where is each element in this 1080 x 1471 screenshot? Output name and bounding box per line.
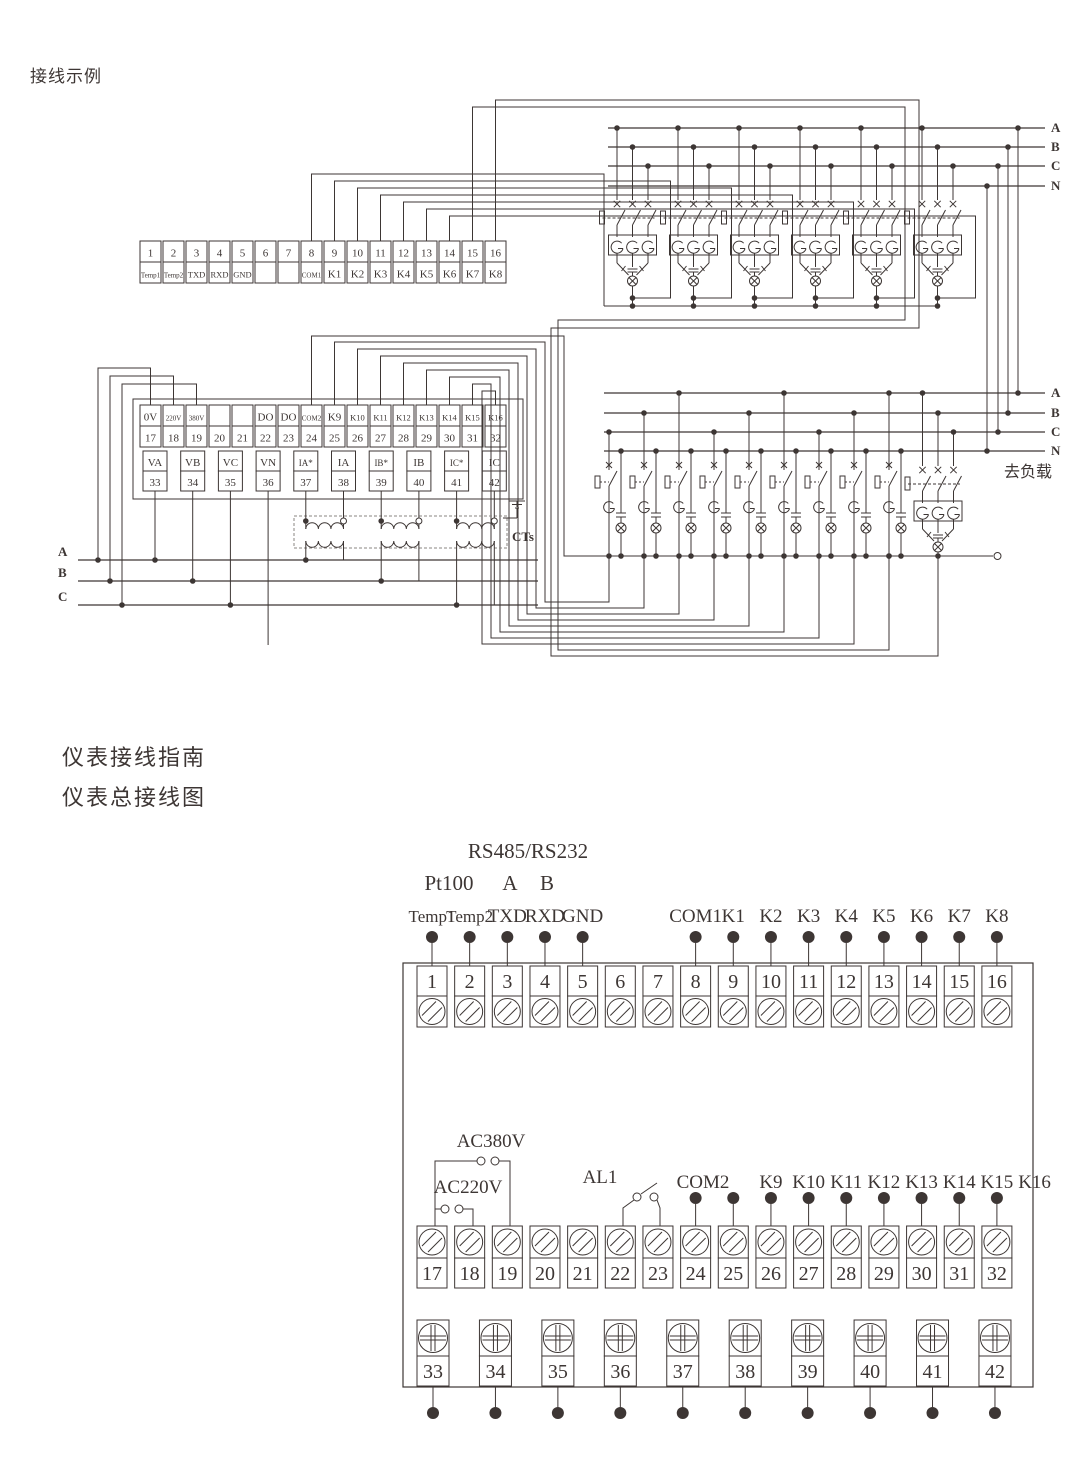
terminal-strip-1-cell-bottom: Temp2	[164, 272, 184, 280]
terminal-number: 26	[761, 1263, 781, 1285]
terminal-number: 40	[860, 1361, 880, 1383]
terminal-top-label: K2	[759, 906, 782, 927]
ac380v-label: AC380V	[457, 1131, 526, 1152]
terminal-top-label: GND	[562, 906, 603, 927]
terminal-strip-1-cell-top: 16	[490, 248, 502, 260]
terminal-strip-1-cell-bottom: K5	[420, 269, 434, 281]
terminal-number: 2	[465, 971, 475, 993]
terminal-strip-2-cell-bottom: 26	[352, 433, 364, 445]
strip3-number: 35	[225, 477, 237, 489]
terminal-number: 29	[874, 1263, 894, 1285]
terminal-number: 31	[949, 1263, 969, 1285]
terminal-strip-1-cell-bottom: K4	[397, 269, 411, 281]
terminal-row-1: 12345678910111213141516	[417, 966, 1012, 1027]
strip3-label: VC	[223, 457, 238, 469]
terminal-number: 23	[648, 1263, 668, 1285]
terminal-number: 34	[485, 1361, 505, 1383]
wiring-example-diagram: 1Temp12Temp23TXD4RXD5GND678COM19K110K211…	[0, 0, 1080, 700]
left-bus-label-b: B	[58, 565, 67, 580]
strip3-number: 36	[263, 477, 275, 489]
left-bus-label-a: A	[58, 544, 68, 559]
bus2-label-b: B	[1051, 405, 1060, 420]
mid-labels: AC380VAC220VAL1COM2K9K10K11K12K13K14K15K…	[434, 1131, 1051, 1226]
terminal-strip-1-cell-top: 8	[309, 248, 315, 260]
terminal-number: 6	[615, 971, 625, 993]
terminal-top-label: Temp2	[446, 907, 493, 926]
terminal-number: 14	[912, 971, 932, 993]
terminal-strip-2-cell-top: K9	[328, 412, 342, 424]
terminal-strip-1-cell-top: 5	[240, 248, 246, 260]
terminal-top-label: TXD	[488, 906, 527, 927]
cts-label: CTs	[512, 529, 534, 544]
terminal-strip-1-cell-bottom: GND	[233, 270, 251, 280]
terminal-number: 4	[540, 971, 550, 993]
terminal-number: 13	[874, 971, 894, 993]
wiring-manual-page: { "page": { "top_title": "接线示例", "headin…	[0, 0, 1080, 1471]
terminal-mid-label: K9	[759, 1172, 782, 1193]
terminal-strip-1-cell-top: 15	[467, 248, 479, 260]
terminal-strip-1-cell-bottom: Temp1	[141, 272, 161, 280]
strip3-label: VN	[260, 457, 276, 469]
terminal-number: 5	[578, 971, 588, 993]
terminal-top-label: K8	[985, 906, 1008, 927]
terminal-number: 18	[460, 1263, 480, 1285]
strip3-number: 42	[489, 477, 500, 489]
terminal-number: 8	[691, 971, 701, 993]
terminal-strip-1-cell-top: 4	[217, 248, 223, 260]
terminal-strip-1-cell-bottom: K8	[489, 269, 503, 281]
terminal-top-label: COM1	[669, 906, 722, 927]
contactor-group	[783, 125, 840, 286]
terminal-mid-label: K14	[943, 1172, 976, 1193]
terminal-number: 33	[423, 1361, 443, 1383]
terminal-strip-2-cell-top: K12	[396, 413, 411, 423]
terminal-strip-1: 1Temp12Temp23TXD4RXD5GND678COM19K110K211…	[140, 241, 506, 283]
strip3-label: IB	[413, 457, 424, 469]
terminal-number: 9	[728, 971, 738, 993]
terminal-strip-2-cell-top: K15	[465, 413, 480, 423]
terminal-number: 39	[798, 1361, 818, 1383]
terminal-strip-1-cell-top: 13	[421, 248, 433, 260]
left-bus-lines: ABC	[58, 544, 538, 605]
terminal-top-label: K5	[872, 906, 895, 927]
to-load-label: 去负载	[1004, 463, 1052, 481]
strip3-label: VA	[148, 457, 163, 469]
terminal-number: 20	[535, 1263, 555, 1285]
terminal-number: 41	[923, 1361, 943, 1383]
terminal-number: 21	[573, 1263, 593, 1285]
strip3-number: 39	[376, 477, 388, 489]
strip3-number: 34	[187, 477, 199, 489]
rs-a-label: A	[502, 871, 518, 895]
terminal-mid-label: K11	[830, 1172, 862, 1193]
terminal-number: 32	[987, 1263, 1007, 1285]
pt100-label: Pt100	[424, 871, 473, 895]
terminal-overview-diagram: RS485/RS232Pt100ABTemp1Temp2TXDRXDGNDCOM…	[0, 700, 1080, 1471]
terminal-strip-2-cell-bottom: 27	[375, 433, 387, 445]
terminal-number: 16	[987, 971, 1007, 993]
strip3-number: 33	[150, 477, 162, 489]
terminal-number: 36	[610, 1361, 630, 1383]
terminal-number: 38	[735, 1361, 755, 1383]
bus2-label-c: C	[1051, 424, 1060, 439]
terminal-strip-2-cell-bottom: 25	[329, 433, 341, 445]
terminal-top-label: RXD	[525, 906, 565, 927]
terminal-strip-2-cell-top: K13	[419, 413, 434, 423]
contactor-group	[905, 125, 962, 286]
terminal-strip-2-cell-top: 380V	[189, 415, 205, 423]
terminal-number: 10	[761, 971, 781, 993]
terminal-top-label: K7	[948, 906, 971, 927]
terminal-strip-3: VA33VB34VC35VN36IA*37IA38IB*39IB40IC*41I…	[143, 451, 506, 491]
terminal-strip-2-cell-bottom: 29	[421, 433, 433, 445]
terminal-strip-1-cell-top: 9	[332, 248, 338, 260]
terminal-strip-1-cell-bottom: K7	[466, 269, 480, 281]
terminal-top-label: K4	[835, 906, 859, 927]
terminal-strip-2: 0V17220V18380V192021DO22DO23COM224K925K1…	[140, 405, 506, 447]
terminal-mid-label: K16	[1018, 1172, 1051, 1193]
terminal-strip-2-cell-bottom: 17	[145, 433, 157, 445]
strip3-label: IA	[338, 457, 350, 469]
terminal-top-label: K6	[910, 906, 933, 927]
terminal-strip-2-cell-bottom: 31	[467, 433, 478, 445]
terminal-leads	[426, 931, 1003, 966]
strip3-number: 40	[413, 477, 425, 489]
terminal-number: 17	[422, 1263, 442, 1285]
contactor-group	[844, 125, 901, 286]
terminal-strip-2-cell-bottom: 19	[191, 433, 203, 445]
terminal-strip-1-cell-bottom: K6	[443, 269, 457, 281]
strip3-number: 37	[300, 477, 312, 489]
terminal-strip-1-cell-top: 11	[375, 248, 386, 260]
terminal-strip-2-cell-bottom: 21	[237, 433, 248, 445]
terminal-strip-1-cell-bottom: K2	[351, 269, 364, 281]
terminal-strip-2-cell-top: K14	[442, 413, 457, 423]
strip3-label: VB	[185, 457, 200, 469]
terminal-number: 24	[686, 1263, 706, 1285]
terminal-number: 7	[653, 971, 663, 993]
terminal-mid-label: K13	[905, 1172, 938, 1193]
terminal-strip-2-cell-bottom: 22	[260, 433, 271, 445]
bus2-label-a: A	[1051, 385, 1061, 400]
terminal-strip-2-cell-top: K16	[488, 413, 503, 423]
terminal-strip-1-cell-bottom: RXD	[211, 270, 229, 280]
terminal-strip-1-cell-bottom: COM1	[302, 272, 322, 280]
terminal-number: 12	[836, 971, 856, 993]
rs-b-label: B	[540, 871, 554, 895]
terminal-strip-1-cell-top: 3	[194, 248, 200, 260]
contactor-group	[722, 125, 779, 286]
terminal-number: 35	[548, 1361, 568, 1383]
terminal-number: 27	[799, 1263, 819, 1285]
terminal-strip-1-cell-top: 7	[286, 248, 292, 260]
terminal-number: 19	[497, 1263, 517, 1285]
terminal-number: 28	[836, 1263, 856, 1285]
terminal-mid-label: K12	[868, 1172, 901, 1193]
strip3-label: IB*	[374, 458, 388, 468]
terminal-strip-1-cell-top: 10	[352, 248, 364, 260]
terminal-number: 1	[427, 971, 437, 993]
bus2-label-n: N	[1051, 443, 1061, 458]
wires	[95, 100, 1001, 656]
rs485-rs232-label: RS485/RS232	[468, 839, 588, 863]
bus1-label-n: N	[1051, 178, 1061, 193]
terminal-strip-1-cell-top: 2	[171, 248, 177, 260]
terminal-number: 42	[985, 1361, 1005, 1383]
terminal-strip-2-cell-top: DO	[258, 412, 274, 424]
terminal-mid-label: K15	[981, 1172, 1014, 1193]
terminal-strip-2-cell-bottom: 18	[168, 433, 180, 445]
bus-lines: ABCNABCN	[604, 120, 1061, 458]
bus1-label-a: A	[1051, 120, 1061, 135]
header-labels: RS485/RS232Pt100ABTemp1Temp2TXDRXDGNDCOM…	[409, 839, 1009, 927]
terminal-number: 30	[912, 1263, 932, 1285]
strip3-number: 38	[338, 477, 350, 489]
al1-label: AL1	[583, 1167, 618, 1188]
terminal-strip-1-cell-bottom: K1	[328, 269, 341, 281]
terminal-top-label: K1	[722, 906, 745, 927]
terminal-strip-2-cell-top: K10	[350, 413, 365, 423]
terminal-mid-label: COM2	[677, 1172, 730, 1193]
terminal-number: 3	[502, 971, 512, 993]
current-transformers: CTs	[294, 491, 534, 608]
bus1-label-c: C	[1051, 158, 1060, 173]
terminal-strip-1-cell-top: 14	[444, 248, 456, 260]
terminal-strip-2-cell-bottom: 30	[444, 433, 456, 445]
terminal-strip-2-cell-bottom: 24	[306, 433, 318, 445]
terminal-strip-1-cell-top: 12	[398, 248, 409, 260]
bus1-label-b: B	[1051, 139, 1060, 154]
strip3-label: IA*	[299, 458, 313, 468]
terminal-strip-2-cell-bottom: 28	[398, 433, 410, 445]
ac220v-label: AC220V	[434, 1177, 503, 1198]
contactor-group	[661, 125, 718, 286]
terminal-strip-2-cell-top: 0V	[144, 412, 158, 424]
terminal-strip-2-cell-top: K11	[373, 413, 387, 423]
left-bus-label-c: C	[58, 589, 67, 604]
terminal-number: 37	[673, 1361, 693, 1383]
terminal-strip-2-cell-top: COM2	[302, 415, 322, 423]
terminal-number: 25	[723, 1263, 743, 1285]
terminal-row-3: 33343536373839404142	[417, 1320, 1011, 1419]
terminal-strip-2-cell-bottom: 23	[283, 433, 295, 445]
strip3-label: IC*	[450, 458, 464, 468]
terminal-row-2: 17181920212223242526272829303132	[417, 1226, 1012, 1288]
terminal-mid-label: K10	[792, 1172, 825, 1193]
terminal-strip-2-cell-top: DO	[281, 412, 297, 424]
strip3-label: IC	[489, 457, 500, 469]
terminal-strip-1-cell-bottom: K3	[374, 269, 388, 281]
contactor-group	[905, 390, 962, 552]
terminal-number: 15	[949, 971, 969, 993]
terminal-strip-2-cell-bottom: 20	[214, 433, 226, 445]
terminal-strip-2-cell-bottom: 32	[490, 433, 501, 445]
terminal-strip-1-cell-bottom: TXD	[188, 270, 205, 280]
terminal-strip-1-cell-top: 1	[148, 248, 154, 260]
terminal-number: 11	[799, 971, 818, 993]
load-branches	[595, 390, 906, 559]
strip3-number: 41	[451, 477, 462, 489]
contactor-group	[600, 125, 657, 286]
terminal-number: 22	[610, 1263, 630, 1285]
terminal-strip-2-cell-top: 220V	[166, 415, 182, 423]
terminal-top-label: K3	[797, 906, 820, 927]
terminal-strip-1-cell-top: 6	[263, 248, 269, 260]
